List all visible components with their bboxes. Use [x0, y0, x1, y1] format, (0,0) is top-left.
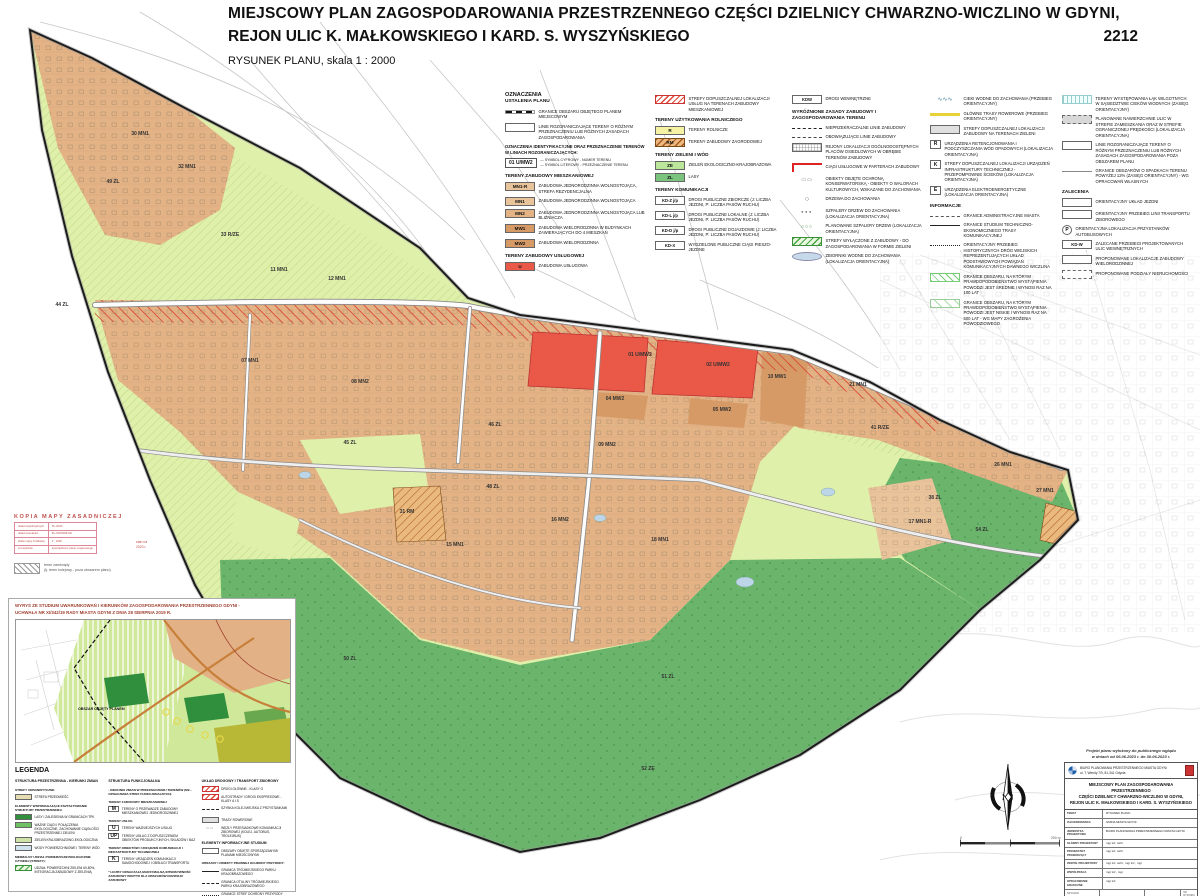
inset-legend-column-1: STRUKTURA PRZESTRZENNA - KIERUNKI ZMIANS… [15, 776, 102, 896]
legend-item: STREFY DOPUSZCZALNEJ LOKALIZACJI USŁUG N… [655, 95, 784, 112]
bpp-logo-icon [1068, 766, 1077, 775]
closed-area-swatch [14, 563, 40, 574]
legend-column-2: STREFY DOPUSZCZALNEJ LOKALIZACJI USŁUG N… [655, 92, 792, 330]
office-name: BIURO PLANOWANIA PRZESTRZENNEGO MIASTA G… [1080, 766, 1182, 775]
zone-label: 48 ZL [486, 484, 499, 490]
stamp-title: KOPIA MAPY ZASADNICZEJ [14, 514, 224, 520]
legend-item: KD-Z j/pDROGI PUBLICZNE ZBIORCZE (J: LIC… [655, 196, 784, 208]
legend-item: PROPONOWANE LOKALIZACJE ZABUDOWY WIELORO… [1062, 255, 1190, 267]
exhibition-notice: Projekt planu wyłożony do publicznego wg… [1064, 748, 1198, 760]
legend-column-5: TERENY WYSTĘPOWANIA ŁĄK WILGOTNYCH W SĄS… [1062, 92, 1198, 330]
plan-title-line2: REJON ULIC K. MAŁKOWSKIEGO I KARD. S. WY… [228, 28, 690, 46]
legend-item: Mtereny o przewadze zabudowy mieszkaniow… [108, 806, 195, 815]
legend-item: ▭▭węzły przesiadkowe komunikacji zbiorow… [202, 825, 289, 838]
zone-label: 45 ZL [343, 440, 356, 446]
zone-label: 41 R/ZE [871, 425, 890, 431]
closed-area-note: teren zamknięty (tj. teren kolejowy - po… [14, 563, 224, 574]
gdynia-crest-icon [1185, 765, 1194, 776]
zone-label: 09 MN2 [598, 442, 616, 448]
title-block: Projekt planu wyłożony do publicznego wg… [1064, 748, 1198, 896]
titleblock-rows: TEMATRYSUNEK PLANUZLECENIODAWCAGMINA MIA… [1065, 810, 1197, 891]
titleblock-row: PROJEKTANT PROWADZĄCYmgr inż. arch. [1065, 848, 1197, 860]
zone-label: 08 MN2 [351, 379, 369, 385]
titleblock-row: JEDNOSTKA PROJEKTOWABIURO PLANOWANIA PRZ… [1065, 828, 1197, 840]
zone-label: 05 MW2 [713, 407, 732, 413]
inset-legend-title: LEGENDA [15, 767, 289, 774]
legend-item: ORIENTACYJNY PRZEBIEG HISTORYCZNYCH DRÓG… [930, 241, 1054, 269]
legend-column-4: ∿∿∿CIEKI WODNE DO ZACHOWANIA (PRZEBIEG O… [930, 92, 1062, 330]
zone-label: 50 ZL [343, 656, 356, 662]
legend-item: GRANICE ADMINISTRACYJNE MIASTA [930, 212, 1054, 218]
legend-item: KDWDROGI WEWNĘTRZNE [792, 95, 922, 104]
legend-column-1: OZNACZENIAUSTALENIA PLANUGRANICE OBSZARU… [505, 92, 655, 330]
legend-item: GRANICE OBSZARÓW O SPADKACH TERENU POWYŻ… [1062, 167, 1190, 184]
legend-item: GRANICE OBSZARU, NA KTÓRYM PRAWDOPODOBIE… [930, 273, 1054, 296]
legend-item: obszary objęte sporządzanymi planami mie… [202, 848, 289, 857]
zone-label: 12 MN1 [328, 276, 346, 282]
titleblock-plan-title: MIEJSCOWY PLAN ZAGOSPODAROWANIA PRZESTRZ… [1065, 779, 1197, 810]
titleblock-row: GŁÓWNY PROJEKTANTmgr inż. arch. [1065, 840, 1197, 849]
zone-label: 01 U/MW2 [628, 352, 652, 358]
legend-column-3: KDWDROGI WEWNĘTRZNEWYRÓŻNIONE ZASADY ZAB… [792, 92, 930, 330]
legend-item: ○○○PLANOWANE SZPALERY DRZEW (LOKALIZACJA… [792, 222, 922, 234]
legend-item: KD-D j/pDROGI PUBLICZNE DOJAZDOWE (J: LI… [655, 226, 784, 238]
zone-label: 11 MN1 [270, 267, 287, 273]
legend-item: Ktereny urządzeń komunikacji samochodowe… [108, 856, 195, 865]
north-arrow-icon [984, 760, 1032, 834]
legend-item: RMTERENY ZABUDOWY ZAGRODOWEJ [655, 138, 784, 147]
legend-item: UZABUDOWA USŁUGOWA [505, 262, 647, 271]
titleblock-footer: NR PLANU 2212 DATA kwiecień 2023 SKALA 1… [1065, 890, 1197, 896]
zone-label: 17 MN1-R [909, 519, 932, 525]
zone-label: 02 U/MW2 [706, 362, 730, 368]
zone-label: 33 R/ZE [221, 232, 240, 238]
zone-label: 21 MN1 [849, 382, 867, 388]
legend-item: GRANICE STUDIUM TECHNICZNO-EKONOMICZNEGO… [930, 221, 1054, 238]
legend-item: PROPONOWANE PODZIAŁY NIERUCHOMOŚCI [1062, 270, 1190, 279]
legend-item: CIĄGI USŁUGOWE W PARTERACH ZABUDOWY [792, 163, 922, 172]
legend-item: drogi główne - klasy G [202, 786, 289, 792]
legend-item: LINIE ROZGRANICZAJĄCE TERENY O RÓŻNYM PR… [505, 123, 647, 140]
legend-item: EURZĄDZENIA ELEKTROENERGETYCZNE (LOKALIZ… [930, 186, 1054, 198]
zone-label: 32 MN1 [178, 164, 196, 170]
zone-label: 10 MW1 [768, 374, 787, 380]
zone-label: 46 ZL [488, 422, 501, 428]
zone-label: 18 MN1 [651, 537, 669, 543]
plan-legend: OZNACZENIAUSTALENIA PLANUGRANICE OBSZARU… [505, 92, 1198, 330]
legend-item: PORIENTACYJNA LOKALIZACJA PRZYSTANKÓW AU… [1062, 225, 1190, 237]
studium-inset: WYRYS ZE STUDIUM UWARUNKOWAŃ I KIERUNKÓW… [8, 598, 296, 892]
legend-item: ●●●SZPALERY DRZEW DO ZACHOWANIA (LOKALIZ… [792, 207, 922, 219]
svg-text:0: 0 [960, 836, 962, 840]
legend-item: LINIE ROZGRANICZAJĄCE TERENY O RÓŻNYM PR… [1062, 141, 1190, 164]
titleblock-row: TEMATRYSUNEK PLANU [1065, 810, 1197, 819]
legend-item: granice stref ochrony przyrody [202, 891, 289, 896]
legend-item: UPtereny usług z dopuszczeniem obiektów … [108, 833, 195, 842]
legend-item: granica Trójmiejskiego Parku Krajobrazow… [202, 867, 289, 877]
legend-item: ORIENTACYJNY PRZEBIEG LINII TRANSPORTU Z… [1062, 210, 1190, 222]
legend-item: STREFY WYŁĄCZONE Z ZABUDOWY - DO ZAGOSPO… [792, 237, 922, 249]
legend-item: lasy i zalesienia w granicach TPK [15, 814, 102, 820]
legend-item: ∿∿∿CIEKI WODNE DO ZACHOWANIA (PRZEBIEG O… [930, 95, 1054, 107]
inset-area-label: OBSZAR OBJĘTY PLANEM [78, 707, 125, 711]
titleblock-row: WSPÓŁPRACAmgr inż., mgr [1065, 869, 1197, 878]
zone-label: 26 MN1 [994, 462, 1012, 468]
legend-item: trasy rowerowe [202, 817, 289, 823]
zone-label: 54 ZL [975, 527, 988, 533]
legend-item: KD-XWYDZIELONE PUBLICZNE CIĄGI PIESZO-JE… [655, 241, 784, 253]
plan-number: 2212 [1104, 28, 1138, 46]
legend-item: ZBIORNIKI WODNE DO ZACHOWANIA (LOKALIZAC… [792, 252, 922, 264]
zone-label: 15 MN1 [446, 542, 464, 548]
legend-item: autostrady i drogi ekspresowe - klasy A … [202, 794, 289, 803]
legend-item: ZEZIELEŃ EKOLOGICZNO-KRAJOBRAZOWA [655, 161, 784, 170]
legend-item: KSTREFY DOPUSZCZALNEJ LOKALIZACJI URZĄDZ… [930, 160, 1054, 183]
legend-item: ORIENTACYJNY UKŁAD JEZDNI [1062, 198, 1190, 207]
legend-item: RURZĄDZENIA RETENCJONOWANIA I PODCZYSZCZ… [930, 140, 1054, 157]
legend-item: MW1ZABUDOWA WIELORODZINNA W BUDYNKACH ZA… [505, 224, 647, 236]
legend-item: GRANICE OBSZARU, NA KTÓRYM PRAWDOPODOBIE… [930, 299, 1054, 327]
legend-item: ZLLASY [655, 173, 784, 182]
zone-label: 38 ZL [928, 495, 941, 501]
legend-item: Utereny ważniejszych usług [108, 825, 195, 831]
inset-legend: STRUKTURA PRZESTRZENNA - KIERUNKI ZMIANS… [15, 776, 289, 896]
sheet-header: MIEJSCOWY PLAN ZAGOSPODAROWANIA PRZESTRZ… [228, 5, 1138, 67]
legend-item: GŁÓWNE TRASY ROWEROWE (PRZEBIEG ORIENTAC… [930, 110, 1054, 122]
legend-item: ważne ciągi i połączenia ekologiczne, za… [15, 822, 102, 835]
zone-label: 07 MN1 [241, 358, 259, 364]
svg-text:200 m: 200 m [1051, 836, 1061, 840]
stamp-table: układ współrzędnychPL-2000układ wysokośc… [14, 522, 97, 554]
zone-label: 52 ZE [641, 766, 655, 772]
zone-label: 44 ZL [55, 302, 68, 308]
legend-item: MN2ZABUDOWA JEDNORODZINNA WOLNOSTOJĄCA L… [505, 209, 647, 221]
scale-bar: 0 200 m [956, 836, 1066, 850]
legend-item: MW2ZABUDOWA WIELORODZINNA [505, 239, 647, 248]
legend-item: ○DRZEWA DO ZACHOWANIA [792, 195, 922, 204]
legend-item: ▭▭OBIEKTY OBJĘTE OCHRONĄ KONSERWATORSKĄ … [792, 175, 922, 192]
legend-item: GRANICE OBSZARU OBJĘTEGO PLANEM MIEJSCOW… [505, 108, 647, 120]
legend-item: strefa przedmieść [15, 794, 102, 800]
legend-item: TERENY WYSTĘPOWANIA ŁĄK WILGOTNYCH W SĄS… [1062, 95, 1190, 112]
legend-item: udział powierzchni zieleni 60-80%, integ… [15, 865, 102, 874]
legend-item: RTERENY ROLNICZE [655, 126, 784, 135]
titleblock-row: ZESPÓŁ PROJEKTOWYmgr inż. arch., mgr inż… [1065, 860, 1197, 869]
plan-title-line1: MIEJSCOWY PLAN ZAGOSPODAROWANIA PRZESTRZ… [228, 5, 1138, 23]
legend-item: OBOWIĄZUJĄCE LINIE ZABUDOWY [792, 133, 922, 139]
legend-item: NIEPRZEKRACZALNE LINIE ZABUDOWY [792, 124, 922, 130]
zone-label: 31 RM [400, 509, 415, 515]
legend-item: MN1-RZABUDOWA JEDNORODZINNA WOLNOSTOJĄCA… [505, 182, 647, 194]
legend-item: STREFY DOPUSZCZALNEJ LOKALIZACJI ZABUDOW… [930, 125, 1054, 137]
titleblock-row: OPRACOWANIE GRAFICZNEmgr inż. [1065, 878, 1197, 890]
legend-item: szybka kolej miejska z przystankami [202, 805, 289, 815]
plan-subtitle: RYSUNEK PLANU, skala 1 : 2000 [228, 55, 1138, 67]
zone-label: 51 ZL [661, 674, 674, 680]
legend-item: MN1ZABUDOWA JEDNORODZINNA WOLNOSTOJĄCA [505, 197, 647, 206]
map-copy-stamp: KOPIA MAPY ZASADNICZEJ układ współrzędny… [14, 514, 224, 574]
stamp-note: stan na2023 r. [136, 540, 147, 550]
zone-label: 49 ZL [106, 179, 119, 185]
legend-item: PLANOWANE NAWIERZCHNIE ULIC W STREFIE ZA… [1062, 115, 1190, 138]
legend-item: KD-WZALECANE PRZEBIEGI PROJEKTOWANYCH UL… [1062, 240, 1190, 252]
legend-item: REJONY LOKALIZACJI OGÓLNODOSTĘPNYCH PLAC… [792, 143, 922, 160]
zone-label: 27 MN1 [1036, 488, 1054, 494]
legend-item: zieleń krajobrazowo-ekologiczna [15, 837, 102, 843]
titleblock-row: ZLECENIODAWCAGMINA MIASTA GDYNI [1065, 819, 1197, 828]
plan-sheet: 30 MN149 ZL32 MN144 ZL33 R/ZE11 MN112 MN… [0, 0, 1200, 896]
inset-title: WYRYS ZE STUDIUM UWARUNKOWAŃ I KIERUNKÓW… [15, 603, 289, 616]
legend-item: granica otuliny Trójmiejskiego Parku Kra… [202, 879, 289, 889]
inset-map: OBSZAR OBJĘTY PLANEM [15, 619, 291, 763]
inset-legend-column-2: STRUKTURA FUNKCJONALNA- KIERUNKI ZMIAN W… [108, 776, 195, 896]
inset-legend-column-3: UKŁAD DROGOWY I TRANSPORT ZBIOROWYdrogi … [202, 776, 289, 896]
zone-label: 16 MN2 [551, 517, 569, 523]
legend-item: wody powierzchniowe i tereny wód [15, 845, 102, 851]
legend-item: KD-L j/pDROGI PUBLICZNE LOKALNE (J: LICZ… [655, 211, 784, 223]
legend-item: 01 U/MW2— SYMBOL CYFROWY - NUMER TERENU—… [505, 158, 647, 168]
zone-label: 30 MN1 [131, 131, 149, 137]
zone-label: 04 MW2 [606, 396, 625, 402]
